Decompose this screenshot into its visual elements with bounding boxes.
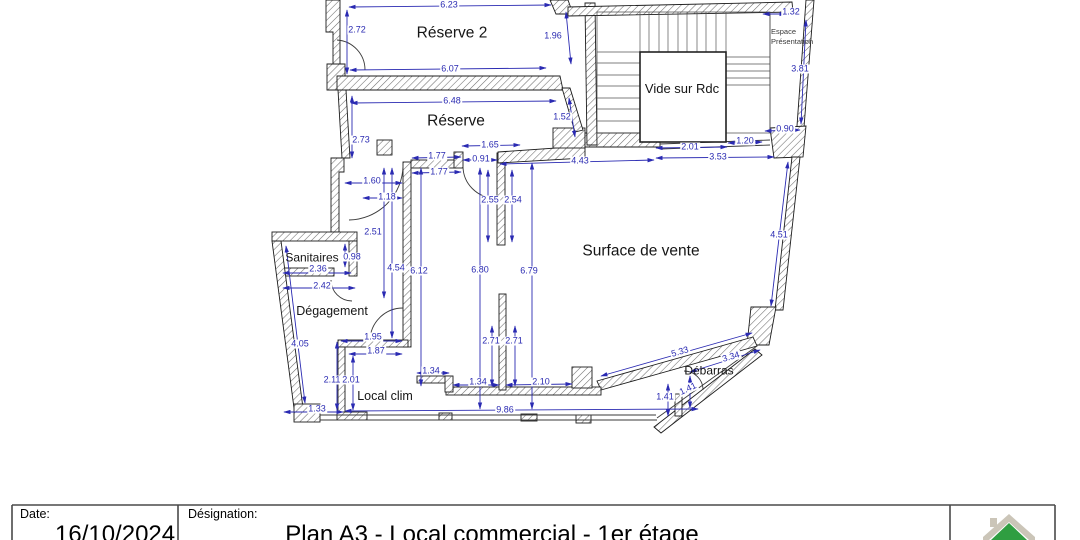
floor-plan-page: Réserve 2RéserveVide sur RdcEspace Prése… [0, 0, 1080, 540]
designation-value: Plan A3 - Local commercial - 1er étage [272, 521, 712, 540]
title-block: Date: 16/10/2024 Désignation: Plan A3 - … [0, 0, 1080, 540]
designation-label: Désignation: [188, 507, 258, 521]
date-value: 16/10/2024 [55, 521, 175, 540]
date-label: Date: [20, 507, 50, 521]
